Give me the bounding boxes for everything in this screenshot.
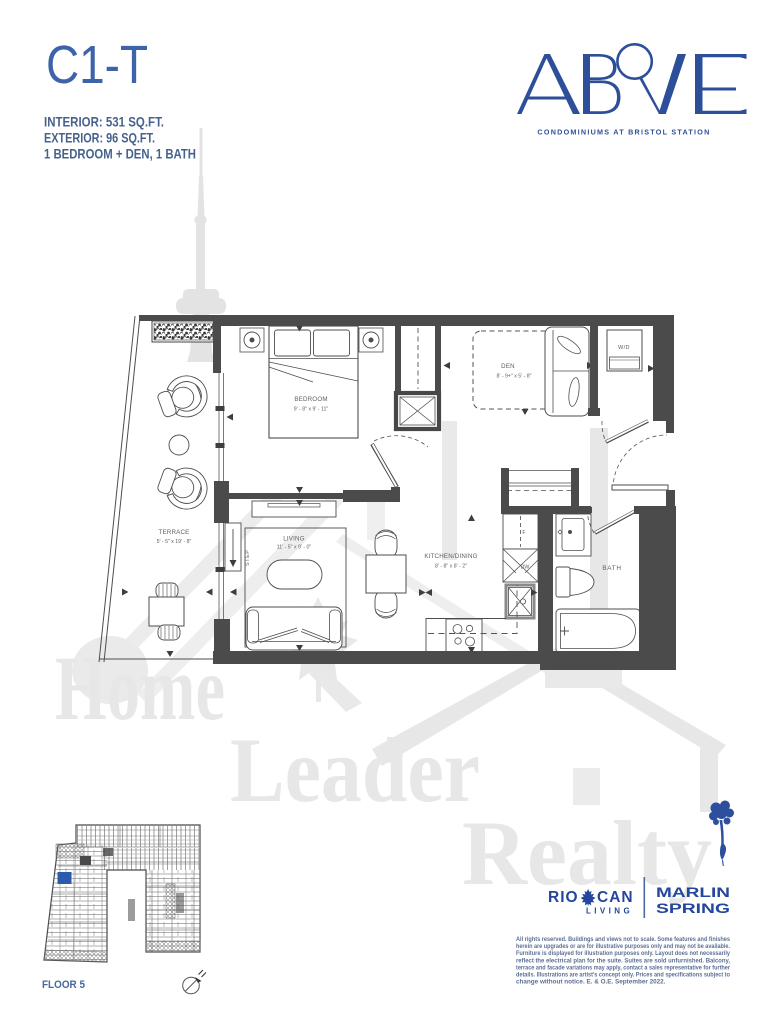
svg-text:terrace and facade variations: terrace and facade variations may apply,… (516, 964, 730, 971)
svg-text:Leader: Leader (230, 719, 480, 821)
svg-text:RIO: RIO (548, 889, 579, 906)
svg-text:5' - 5" x 19' - 8": 5' - 5" x 19' - 8" (157, 539, 192, 545)
svg-text:Furniture is displayed for ill: Furniture is displayed for illustration … (516, 950, 730, 957)
svg-text:LIVING: LIVING (586, 907, 633, 916)
svg-text:8' - 9+" x 5' - 8": 8' - 9+" x 5' - 8" (497, 374, 532, 380)
svg-text:FLOOR 5: FLOOR 5 (42, 979, 85, 991)
svg-text:change without notice. E. & O.: change without notice. E. & O.E. Septemb… (516, 979, 666, 986)
svg-text:BATH: BATH (602, 565, 621, 572)
svg-text:MARLIN: MARLIN (656, 885, 730, 900)
svg-text:11' - 5" x 9' - 0": 11' - 5" x 9' - 0" (277, 545, 312, 551)
svg-text:W/D: W/D (618, 345, 630, 351)
svg-text:INTERIOR: 531 SQ.FT.: INTERIOR: 531 SQ.FT. (44, 114, 164, 130)
svg-text:CONDOMINIUMS AT BRISTOL STATIO: CONDOMINIUMS AT BRISTOL STATION (537, 128, 710, 137)
svg-text:TERRACE: TERRACE (159, 529, 190, 536)
svg-text:EXTERIOR: 96 SQ.FT.: EXTERIOR: 96 SQ.FT. (44, 130, 155, 146)
svg-text:herein are upgrades or are for: herein are upgrades or are for illustrat… (516, 943, 730, 950)
svg-text:F: F (522, 530, 525, 536)
svg-text:DEN: DEN (501, 363, 515, 370)
svg-text:Home: Home (55, 637, 225, 739)
svg-text:SPRING: SPRING (656, 901, 730, 916)
svg-text:STEP: STEP (245, 550, 251, 566)
svg-text:details. Illustrations are art: details. Illustrations are artist's conc… (516, 972, 730, 979)
svg-text:All rights reserved. Buildings: All rights reserved. Buildings and views… (516, 936, 730, 943)
svg-text:1 BEDROOM + DEN, 1 BATH: 1 BEDROOM + DEN, 1 BATH (44, 146, 196, 162)
svg-text:KITCHEN/DINING: KITCHEN/DINING (424, 553, 477, 560)
svg-text:DW: DW (521, 565, 530, 571)
svg-text:C1-T: C1-T (46, 35, 148, 95)
svg-text:CAN: CAN (597, 889, 634, 906)
svg-text:reflect the electrical plan fo: reflect the electrical plan for the suit… (516, 957, 730, 964)
svg-text:9' - 8" x 9' - 11": 9' - 8" x 9' - 11" (294, 407, 329, 413)
svg-text:8' - 8" x 8' - 2": 8' - 8" x 8' - 2" (435, 564, 467, 570)
svg-text:LIVING: LIVING (283, 536, 305, 543)
svg-text:BEDROOM: BEDROOM (294, 396, 327, 403)
